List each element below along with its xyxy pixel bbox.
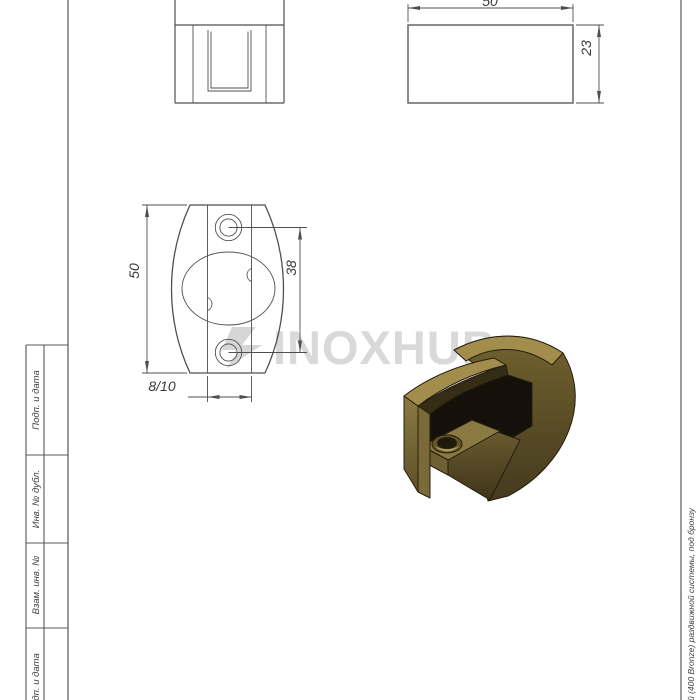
plan-view-notch-right [247,269,252,282]
plan-view: 50 38 8/10 [126,205,307,402]
dim-width-50: 50 [482,0,498,9]
dim-glass-thickness-8-10: 8/10 [148,378,175,394]
sheet-frame [68,0,681,700]
part-left-wall-inner-edge [418,406,430,498]
dim-plan-height-50: 50 [126,263,142,279]
side-view-outline [408,25,573,103]
front-view-slot [208,30,251,91]
title-block-label-podp-1: Подп. и дата [31,370,42,429]
side-view: 50 23 [408,0,604,103]
title-block-label-vzam-inv: Взам. инв. № [31,556,42,615]
title-block-label-podp-2: Подп. и дата [31,653,42,700]
plan-view-cavity [182,252,275,325]
dim-height-23: 23 [578,40,594,57]
title-block-label-inv-dubl: Инв. № дубл. [31,470,42,528]
part-screw-hole-bore [438,438,457,449]
plan-view-outline [172,205,284,373]
right-edge-product-note: й (400 Bronze) раздвижной системы, под б… [686,507,696,700]
dim-hole-spacing-38: 38 [283,260,299,276]
bronze-clamp-3d-render [392,328,584,510]
front-view [175,0,284,103]
side-view-dimension-lines [408,4,604,103]
part-left-wall-front-face [404,396,418,492]
front-view-slot-gasket [211,32,248,89]
technical-drawing-canvas: Подп. и дата Инв. № дубл. Взам. инв. № П… [0,0,700,700]
plan-view-notch-left [208,298,213,311]
title-block-labels: Подп. и дата Инв. № дубл. Взам. инв. № П… [31,370,42,700]
